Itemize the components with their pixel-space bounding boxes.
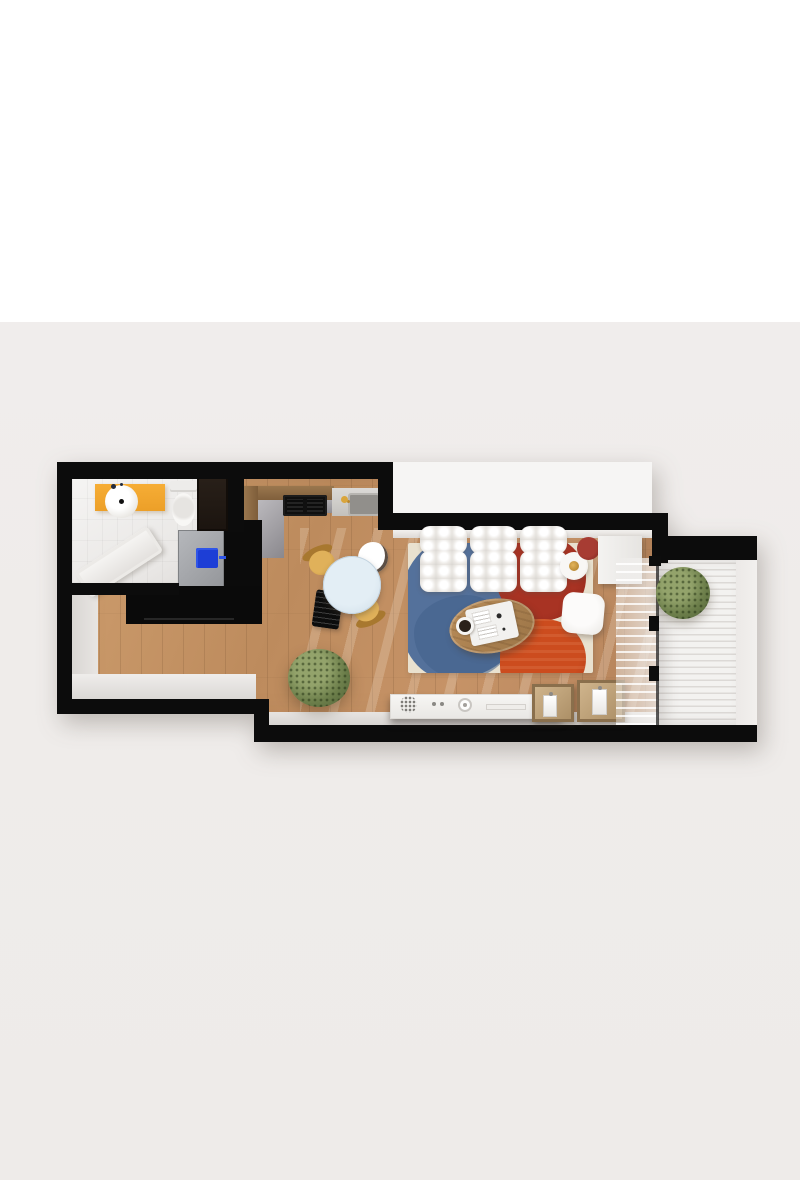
apartment-plan bbox=[0, 0, 800, 800]
floor-lamp-gold-center bbox=[569, 561, 579, 571]
wall-face-strip bbox=[72, 674, 256, 699]
wall-bathroom-kitchen bbox=[228, 462, 244, 532]
sink-drain bbox=[119, 499, 124, 504]
magazine bbox=[477, 624, 499, 640]
sofa-back-cushion bbox=[520, 526, 567, 554]
sofa-back-cushion bbox=[420, 526, 467, 554]
door-frame-tab bbox=[649, 616, 659, 631]
sofa-seat-cushion bbox=[470, 551, 517, 592]
magazine bbox=[471, 609, 491, 625]
wooden-crate bbox=[577, 680, 625, 722]
washing-machine-handle bbox=[219, 556, 226, 559]
bathroom-faucet bbox=[111, 484, 116, 489]
side-console-white bbox=[598, 536, 642, 584]
wall-bathroom-bottom bbox=[57, 583, 179, 595]
balcony-right-face bbox=[736, 558, 757, 725]
decor-dry-plant bbox=[400, 696, 417, 713]
door-frame-tab bbox=[649, 666, 659, 681]
gold-faucet bbox=[341, 496, 348, 503]
wall-balcony-top bbox=[652, 536, 757, 560]
cooktop bbox=[283, 495, 327, 516]
decor-tray bbox=[486, 704, 526, 710]
coffee-cup bbox=[459, 620, 471, 632]
wall-bottom-main bbox=[254, 725, 757, 742]
dining-table-round bbox=[323, 556, 381, 614]
sofa-white-tufted bbox=[420, 526, 567, 592]
wall-bottom-left bbox=[57, 699, 269, 714]
outside-terrace-patch bbox=[393, 462, 652, 513]
saucer bbox=[456, 617, 474, 635]
toilet-bowl bbox=[172, 493, 195, 526]
sofa-seat-cushion bbox=[520, 551, 567, 592]
tray-decor-dots bbox=[496, 613, 502, 619]
toilet-tank bbox=[170, 481, 197, 492]
floorplan-canvas bbox=[0, 0, 800, 1180]
decor-knobs bbox=[432, 702, 436, 706]
wooden-crates bbox=[532, 680, 627, 722]
sofa-back-cushion bbox=[470, 526, 517, 554]
floor-lamp-red-shade bbox=[577, 537, 600, 560]
wall-top bbox=[57, 462, 393, 479]
kitchen-sink bbox=[348, 493, 380, 516]
bottle bbox=[593, 690, 606, 714]
sofa-seat-cushion bbox=[420, 551, 467, 592]
wooden-crate bbox=[532, 684, 574, 722]
bathroom-tall-cabinet bbox=[197, 471, 228, 531]
decor-dial bbox=[458, 698, 472, 712]
washing-machine-door bbox=[196, 548, 218, 568]
door-frame-tab bbox=[649, 556, 661, 566]
pouf-white bbox=[560, 591, 605, 636]
balcony-plant bbox=[656, 567, 710, 619]
bottle bbox=[544, 696, 556, 716]
potted-plant bbox=[288, 649, 350, 707]
